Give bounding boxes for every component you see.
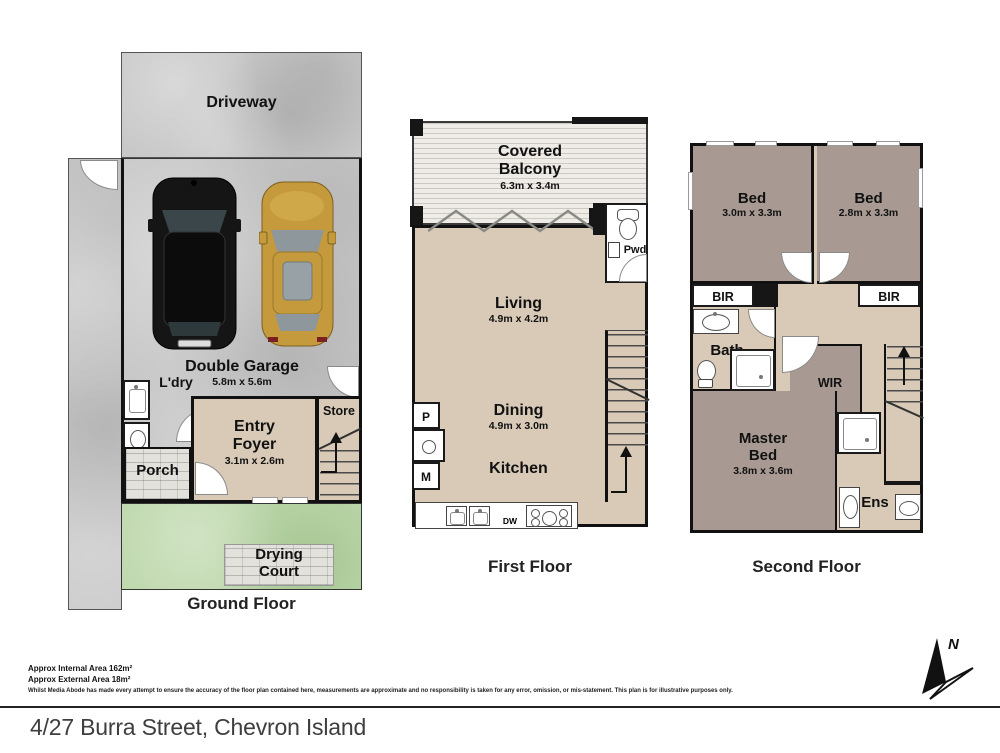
- balcony-line2: Balcony: [412, 161, 648, 179]
- ground-floor-plan: Driveway: [0, 0, 400, 620]
- bir-left-text: BIR: [712, 290, 734, 304]
- ff-stair-diagonal: [606, 378, 650, 401]
- microwave-box: [412, 462, 440, 490]
- ff-stairs: [605, 330, 648, 502]
- bath-basin: [693, 309, 739, 334]
- ens-toilet-box: [839, 487, 860, 528]
- drying-court-label: Drying Court: [224, 546, 334, 581]
- floorplan-canvas: Driveway: [0, 0, 1000, 753]
- sink-right: [469, 506, 490, 526]
- dining-dim: 4.9m x 3.0m: [412, 420, 625, 432]
- bir-left-label: BIR: [692, 288, 754, 306]
- dining-label: Dining 4.9m x 3.0m: [412, 402, 625, 432]
- sf-stair-arrow: [898, 346, 910, 357]
- bed2-label: Bed 2.8m x 3.3m: [817, 190, 920, 219]
- pwd-toilet-tank: [617, 209, 639, 221]
- cooktop: [526, 505, 572, 527]
- gf-stair-arrow-foot: [321, 471, 336, 473]
- ff-stair-arrow-stem: [625, 455, 627, 493]
- master-bed-label: Master Bed 3.8m x 3.6m: [693, 430, 833, 477]
- gold-car-icon: [259, 178, 336, 350]
- bir-left-box: [692, 284, 754, 307]
- bed1-label: Bed 3.0m x 3.3m: [693, 190, 811, 219]
- master-line1: Master: [693, 430, 833, 447]
- internal-area-text: Approx Internal Area 162m²: [28, 664, 132, 674]
- pwd-text: Pwd: [624, 244, 647, 256]
- window-top-4: [876, 141, 900, 146]
- second-floor-label: Second Floor: [690, 557, 923, 577]
- master-line2: Bed: [693, 447, 833, 464]
- living-name: Living: [412, 295, 625, 313]
- bath-toilet: [694, 360, 718, 390]
- pwd-toilet-bowl: [619, 218, 637, 240]
- laundry-label: L'dry: [150, 374, 202, 392]
- master-bed-room: [693, 391, 837, 530]
- entry-line1: Entry: [191, 418, 318, 436]
- dishwasher-label: DW: [498, 511, 522, 529]
- pwd-basin: [608, 242, 620, 258]
- balcony-line1: Covered: [412, 143, 648, 161]
- footer-divider: [0, 706, 1000, 708]
- window-top-2: [755, 141, 777, 146]
- dishwasher-text: DW: [503, 516, 517, 526]
- window-right-1: [918, 168, 923, 208]
- first-floor-main: [412, 225, 648, 527]
- bed2-door-arc: [819, 252, 850, 283]
- entry-line2: Foyer: [191, 436, 318, 454]
- kitchen-text: Kitchen: [489, 460, 548, 477]
- living-label: Living 4.9m x 4.2m: [412, 295, 625, 325]
- bir-right-text: BIR: [878, 290, 900, 304]
- microwave-label: M: [412, 468, 440, 486]
- store-text: Store: [323, 404, 355, 418]
- bed2-dim: 2.8m x 3.3m: [817, 207, 920, 219]
- pantry-box: [412, 402, 440, 429]
- bed1-room: [693, 146, 814, 284]
- ff-stair-treads: [608, 334, 648, 446]
- laundry-text: L'dry: [159, 374, 193, 390]
- dining-name: Dining: [412, 402, 625, 420]
- gf-stair-treads: [320, 450, 359, 500]
- kitchen-label: Kitchen: [412, 460, 625, 478]
- covered-balcony-area: [412, 121, 648, 225]
- ff-stair-arrow-foot: [611, 491, 626, 493]
- balcony-post-topleft: [410, 119, 423, 136]
- external-area-text: Approx External Area 18m²: [28, 675, 130, 685]
- porch-label: Porch: [124, 462, 191, 480]
- ens-shower: [837, 412, 881, 454]
- master-dim: 3.8m x 3.6m: [693, 465, 833, 477]
- bath-door-arc: [748, 309, 775, 338]
- pwd-label: Pwd: [620, 240, 650, 258]
- sf-stairs-bottom-wall: [884, 481, 923, 485]
- disclaimer-text: Whilst Media Abode has made every attemp…: [28, 688, 958, 694]
- drying-line1: Drying: [224, 546, 334, 563]
- bed1-door-arc: [781, 252, 812, 283]
- balcony-dim: 6.3m x 3.4m: [412, 180, 648, 192]
- black-car-icon: [148, 172, 241, 355]
- bed1-name: Bed: [693, 190, 811, 207]
- pantry-label: P: [412, 408, 440, 426]
- microwave-text: M: [421, 470, 431, 484]
- bath-shower: [730, 349, 775, 391]
- window-top-1: [706, 141, 734, 146]
- balcony-label: Covered Balcony 6.3m x 3.4m: [412, 143, 648, 192]
- bifold-door-zigzag: [428, 208, 598, 234]
- wir-room: [790, 344, 862, 412]
- drying-line2: Court: [224, 563, 334, 580]
- bath-label: Bath: [692, 342, 762, 360]
- sink-left: [446, 506, 467, 526]
- hall-wall-chunk: [754, 284, 778, 307]
- pantry-text: P: [422, 410, 430, 424]
- driveway-label: Driveway: [121, 94, 362, 112]
- balcony-post-bottomleft: [410, 206, 423, 227]
- pwd-room: [605, 203, 648, 283]
- sf-stair-treads: [887, 346, 923, 404]
- bed1-dim: 3.0m x 3.3m: [693, 207, 811, 219]
- address-text: 4/27 Burra Street, Chevron Island: [30, 714, 366, 741]
- sf-stair-diagonal: [885, 400, 924, 419]
- balcony-post-right: [589, 208, 609, 232]
- bir-right-label: BIR: [858, 288, 920, 306]
- wir-door-arc: [782, 336, 819, 373]
- bath-room: [692, 307, 776, 391]
- sf-stairs: [884, 344, 923, 484]
- sf-stair-arrow-stem: [903, 355, 905, 385]
- ens-label: Ens: [855, 494, 895, 512]
- window-top-3: [827, 141, 853, 146]
- bir-right-box: [858, 284, 920, 307]
- gf-stair-arrow-stem: [335, 441, 337, 473]
- ens-text: Ens: [861, 494, 889, 511]
- pwd-wall-chunk: [593, 203, 607, 235]
- wir-text: WIR: [818, 376, 842, 390]
- window-left-1: [688, 172, 693, 210]
- ens-basin: [895, 494, 921, 520]
- laundry-tub: [123, 380, 150, 420]
- oven-box: [412, 429, 445, 462]
- entry-foyer-label: Entry Foyer 3.1m x 2.6m: [191, 418, 318, 467]
- side-path: [68, 158, 122, 610]
- oven-ring: [422, 440, 436, 454]
- second-floor-main: [690, 143, 923, 533]
- bath-text: Bath: [710, 342, 743, 359]
- north-label: N: [948, 636, 959, 653]
- balcony-wall-topright: [572, 117, 648, 124]
- wir-label: WIR: [800, 374, 860, 392]
- north-arrow-icon: [910, 632, 976, 706]
- kitchen-bench: DW: [415, 502, 578, 529]
- pwd-door-arc: [619, 254, 647, 282]
- living-dim: 4.9m x 4.2m: [412, 313, 625, 325]
- ff-stair-arrow: [620, 446, 632, 457]
- driveway-text: Driveway: [206, 94, 276, 111]
- bed2-name: Bed: [817, 190, 920, 207]
- ground-floor-label: Ground Floor: [121, 594, 362, 614]
- porch-text: Porch: [136, 462, 179, 479]
- first-floor-label: First Floor: [412, 557, 648, 577]
- store-label: Store: [316, 402, 362, 420]
- bed2-room: [817, 146, 920, 284]
